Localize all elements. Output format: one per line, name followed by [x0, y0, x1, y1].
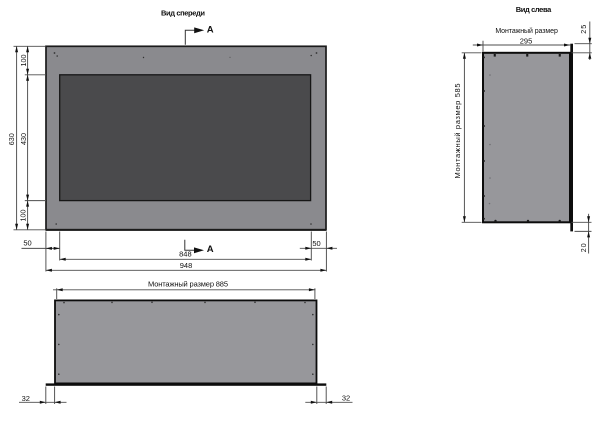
svg-text:25: 25	[579, 24, 588, 34]
svg-text:430: 430	[19, 133, 28, 145]
svg-text:948: 948	[180, 261, 193, 270]
svg-text:100: 100	[19, 55, 28, 67]
svg-text:50: 50	[23, 239, 31, 248]
svg-text:Монтажный размер 885: Монтажный размер 885	[148, 280, 228, 289]
svg-text:295: 295	[520, 37, 533, 46]
svg-text:A: A	[207, 244, 214, 255]
svg-text:Монтажный размер: Монтажный размер	[495, 27, 558, 35]
svg-text:20: 20	[579, 243, 588, 253]
svg-text:Монтажный размер 585: Монтажный размер 585	[453, 84, 462, 179]
svg-text:Вид спереди: Вид спереди	[161, 8, 205, 17]
svg-text:Вид слева: Вид слева	[516, 5, 552, 14]
svg-text:100: 100	[19, 210, 28, 222]
svg-text:630: 630	[7, 133, 16, 145]
svg-text:32: 32	[22, 394, 30, 403]
svg-text:50: 50	[312, 239, 320, 248]
svg-text:32: 32	[342, 393, 350, 402]
svg-text:A: A	[207, 25, 214, 36]
